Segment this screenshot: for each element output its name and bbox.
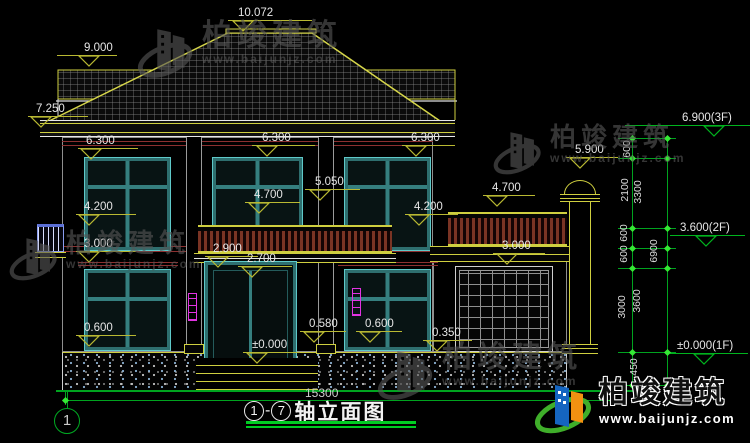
elevation-triangle-icon [78, 251, 100, 263]
elevation-triangle-icon [207, 256, 229, 268]
elevation-triangle-icon [78, 55, 100, 67]
elevation-value: 4.700 [254, 189, 300, 202]
axis-circle-end: 7 [271, 401, 291, 421]
elevation-marker: 5.050 [305, 176, 360, 190]
elevation-value: 5.050 [315, 176, 360, 189]
mini-balcony-slab [35, 252, 66, 258]
chain-dim-value: 600 [618, 224, 630, 242]
elevation-value: ±0.000(1F) [677, 340, 748, 353]
chain-dim-value: 6900 [648, 239, 660, 262]
elevation-marker: 9.000 [57, 42, 117, 56]
elevation-marker: 6.300 [78, 135, 138, 149]
elevation-triangle-icon [405, 145, 427, 157]
wall-lamp-right [352, 288, 361, 316]
elevation-marker: 0.350 [423, 327, 472, 341]
elevation-triangle-icon [78, 335, 100, 347]
elevation-marker: 6.300 [402, 132, 455, 146]
pillar-shaft [569, 202, 591, 352]
elevation-triangle-icon [496, 253, 518, 265]
elevation-marker: 4.200 [76, 201, 136, 215]
elevation-marker: 2.700 [238, 253, 292, 267]
elevation-triangle-icon [693, 353, 715, 365]
pilaster-base-right [316, 344, 336, 354]
elevation-triangle-icon [695, 235, 717, 247]
pillar-base [562, 344, 598, 354]
elevation-marker: 10.072 [228, 7, 312, 21]
elevation-triangle-icon [309, 189, 331, 201]
elevation-value: 6.300 [411, 132, 455, 145]
dimension-line [625, 125, 750, 126]
elevation-triangle-icon [241, 266, 263, 278]
elevation-marker: 6.900(3F) [625, 112, 750, 126]
elevation-marker: 0.600 [76, 322, 136, 336]
title-underline-thick [246, 421, 416, 424]
elevation-marker: 3.000 [76, 238, 136, 252]
elevation-marker: 3.000 [493, 240, 545, 254]
elevation-value: 7.250 [36, 103, 88, 116]
elevation-value: 6.300 [262, 132, 315, 145]
elevation-value: 3.000 [84, 238, 136, 251]
wall-lamp-left [188, 293, 197, 321]
chain-dim-value: 3600 [631, 289, 643, 312]
elevation-value: 4.200 [414, 201, 458, 214]
elevation-value: ±0.000 [252, 339, 300, 352]
chain-dim-value: 3000 [616, 295, 628, 318]
axis-circle-start: 1 [244, 401, 264, 421]
elevation-value: 2.700 [247, 253, 292, 266]
elevation-value: 3.000 [502, 240, 545, 253]
elevation-value: 4.700 [492, 182, 535, 195]
elevation-value: 5.900 [575, 144, 618, 157]
elevation-triangle-icon [248, 202, 270, 214]
elevation-triangle-icon [569, 157, 591, 169]
pilaster-base-left [184, 344, 204, 354]
elevation-triangle-icon [30, 116, 52, 128]
pillar-capital [560, 194, 600, 202]
brand-logo-block: 柏竣建筑 www.baijunjz.com [533, 379, 735, 435]
elevation-triangle-icon [426, 340, 448, 352]
elevation-marker: ±0.000(1F) [670, 340, 748, 354]
elevation-marker: 0.600 [356, 318, 402, 332]
brand-logo-icon [533, 379, 595, 435]
elevation-triangle-icon [256, 145, 278, 157]
elevation-triangle-icon [303, 331, 325, 343]
elevation-marker: 6.300 [252, 132, 315, 146]
brand-url: www.baijunjz.com [599, 411, 735, 426]
brand-name: 柏竣建筑 [599, 379, 735, 408]
elevation-value: 0.350 [432, 327, 472, 340]
elevation-marker: 4.700 [245, 189, 300, 203]
chain-dim-value: 450 [628, 358, 640, 376]
chain-dim-value: 2100 [619, 178, 631, 201]
elevation-triangle-icon [359, 331, 381, 343]
elevation-marker: 0.580 [300, 318, 346, 332]
elevation-marker: 5.900 [566, 144, 618, 158]
elevation-value: 9.000 [84, 42, 117, 55]
title-underline-thin [246, 426, 416, 428]
elevation-marker: 4.700 [483, 182, 535, 196]
elevation-triangle-icon [246, 352, 268, 364]
elevation-triangle-icon [80, 148, 102, 160]
elevation-marker: ±0.000 [243, 339, 300, 353]
elevation-triangle-icon [232, 20, 254, 32]
elevation-triangle-icon [703, 125, 725, 137]
elevation-triangle-icon [408, 214, 430, 226]
elevation-marker: 4.200 [405, 201, 458, 215]
elevation-triangle-icon [78, 214, 100, 226]
axis-bubble-1: 1 [54, 408, 80, 434]
elevation-value: 0.580 [309, 318, 346, 331]
title-dash: - [265, 402, 270, 420]
elevation-value: 10.072 [238, 7, 312, 20]
elevation-value: 6.300 [86, 135, 138, 148]
elevation-value: 3.600(2F) [680, 222, 745, 235]
elevation-value: 0.600 [84, 322, 136, 335]
cad-elevation-drawing: 15300 1 1 - 7 轴立面图 柏竣建筑 www.baijunjz.com… [0, 0, 750, 443]
elevation-marker: 3.600(2F) [670, 222, 745, 236]
elevation-value: 6.900(3F) [682, 112, 750, 125]
mini-balcony-left [37, 224, 64, 252]
elevation-triangle-icon [486, 195, 508, 207]
elevation-value: 4.200 [84, 201, 136, 214]
elevation-value: 0.600 [365, 318, 402, 331]
chain-dim-value: 3300 [632, 180, 644, 203]
elevation-marker: 7.250 [28, 103, 88, 117]
